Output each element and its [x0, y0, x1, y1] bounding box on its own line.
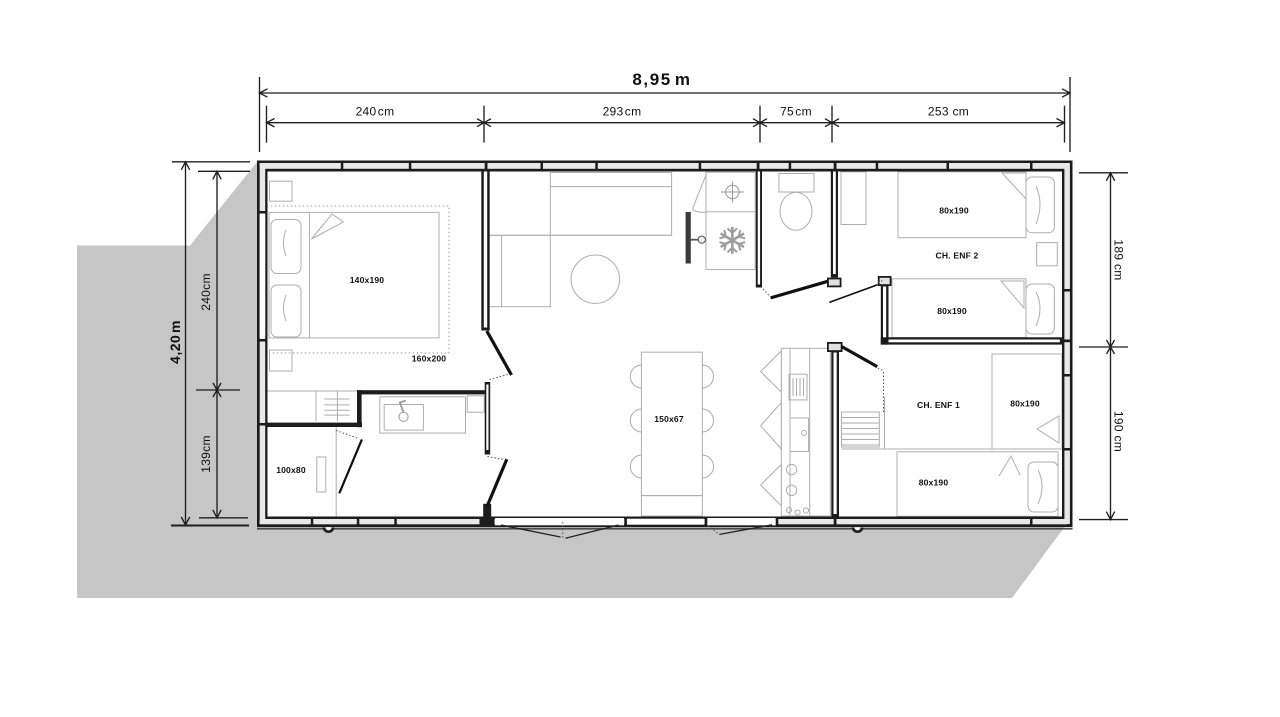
svg-text:160x200: 160x200: [412, 354, 447, 364]
svg-text:139cm: 139cm: [199, 435, 213, 473]
svg-text:80x190: 80x190: [937, 306, 967, 316]
svg-text:240cm: 240cm: [199, 273, 213, 311]
svg-text:150x67: 150x67: [654, 414, 684, 424]
svg-text:80x190: 80x190: [1010, 399, 1040, 409]
svg-text:CH. ENF 2: CH. ENF 2: [936, 251, 979, 261]
svg-text:253 cm: 253 cm: [928, 105, 969, 119]
svg-text:293 cm: 293 cm: [603, 105, 642, 119]
svg-text:4,20 m: 4,20 m: [167, 320, 183, 364]
svg-text:100x80: 100x80: [276, 465, 306, 475]
svg-text:8,95 m: 8,95 m: [632, 70, 691, 89]
svg-text:80x190: 80x190: [919, 478, 949, 488]
svg-text:189 cm: 189 cm: [1112, 239, 1126, 280]
svg-text:CH. ENF 1: CH. ENF 1: [917, 400, 960, 410]
svg-text:240 cm: 240 cm: [356, 105, 395, 119]
svg-text:75 cm: 75 cm: [780, 105, 812, 119]
svg-text:140x190: 140x190: [350, 275, 385, 285]
svg-text:190 cm: 190 cm: [1112, 411, 1126, 452]
svg-text:80x190: 80x190: [939, 206, 969, 216]
